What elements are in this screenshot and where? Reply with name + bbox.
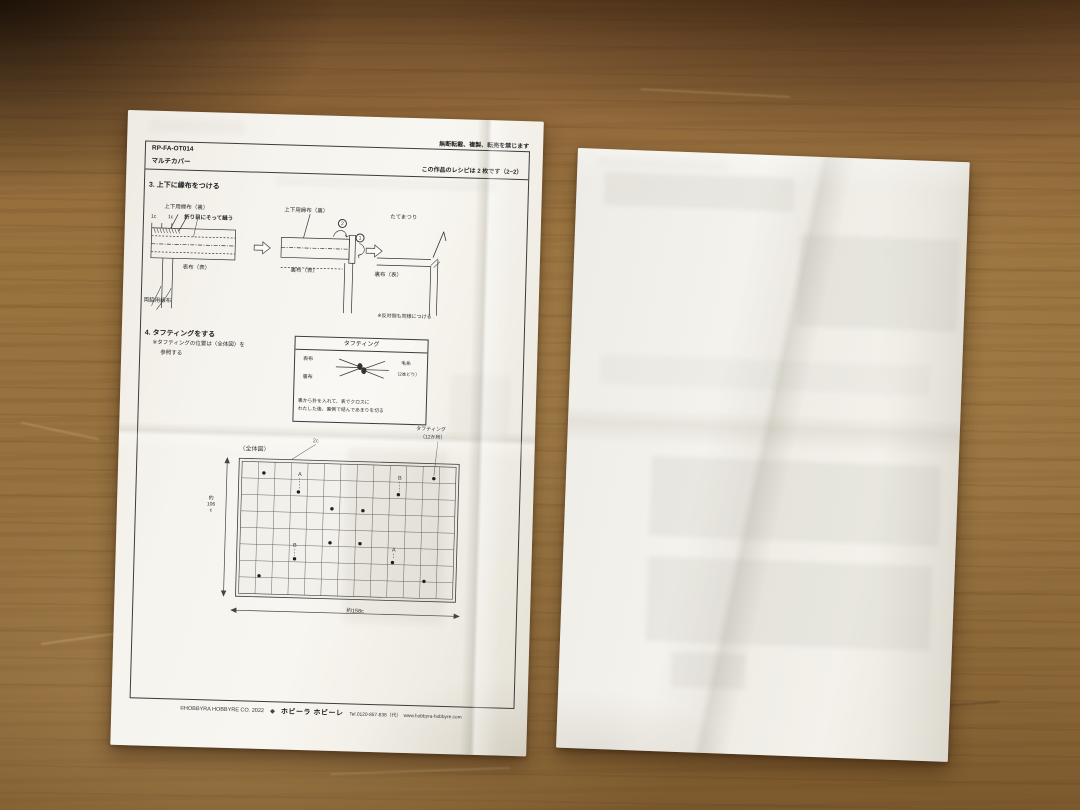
d3-note: ※反対側も同様につける: [377, 314, 431, 321]
hem-stitch-diagram-3: [375, 220, 478, 319]
tufting-back-label: 裏布: [303, 375, 313, 381]
tufting-detail-box: タフティング 表布 裏布 毛糸 （2本どり） 裏から針を入れて、表でクロスに わ…: [292, 336, 428, 426]
recipe-sheet-front: 無断転載、複製、転売を禁じます RP-FA-OT014 マルチカバー この作品の…: [110, 110, 544, 756]
tufting-front-label: 表布: [303, 357, 313, 363]
show-through-ghost: [645, 556, 933, 651]
d1-sew-note: 折り目にそって縫う: [184, 215, 233, 223]
flow-arrow-icon: [253, 241, 271, 255]
step4-note-line1: ※タフティングの位置は〈全体図〉を: [152, 340, 244, 349]
show-through-ghost: [149, 119, 244, 135]
footer-contact: Tel.0120-857-838（代） www.hobbyra-hobbyre.…: [349, 710, 461, 720]
d1-dim-1c: 1c: [151, 215, 156, 221]
tufting-mark-letter: A: [392, 548, 396, 554]
show-through-ghost: [599, 354, 930, 396]
tufting-yarn-label: 毛糸: [401, 362, 411, 368]
show-through-ghost: [797, 234, 960, 332]
brand-logo-icon: [270, 709, 275, 714]
tufting-box-title: タフティング: [295, 337, 427, 354]
item-code: RP-FA-OT014: [152, 145, 194, 153]
tufting-mark-letter: B: [293, 543, 297, 549]
step3-heading: 3. 上下に縁布をつける: [149, 180, 220, 192]
d1-side-strip-label: 両脇用縁布: [144, 298, 172, 305]
recipe-content-frame: RP-FA-OT014 マルチカバー この作品のレシピは 2 枚です（2−2） …: [130, 140, 530, 709]
wood-scratch: [21, 422, 100, 441]
show-through-ghost: [597, 157, 727, 171]
recipe-count-note: この作品のレシピは 2 枚です（2−2）: [421, 164, 522, 176]
footer-brand: ホビーラ ホビーレ: [281, 707, 344, 719]
wood-scratch: [330, 767, 510, 775]
tufting-count-label-line1: タフティング: [416, 427, 446, 434]
d3-fabric-label: 裏布（表）: [374, 272, 402, 279]
show-through-ghost: [670, 652, 746, 690]
wood-scratch: [640, 88, 790, 97]
overall-grid-diagram: ABBA: [220, 432, 475, 627]
step4-heading: 4. タフティングをする: [145, 328, 216, 340]
tufting-mark-letter: A: [298, 472, 302, 478]
tufting-yarn-note: （2本どり）: [395, 372, 420, 378]
step4-note-line2: 参照する: [160, 350, 182, 357]
recipe-sheet-back: [556, 148, 970, 762]
footer-copyright: ©HOBBYRA HOBBYRE CO. 2022: [180, 706, 264, 714]
d2-fabric-label: 裏布（表）: [290, 268, 318, 275]
tufting-caption-line2: わたした後、裏側で結んであまりを切る: [298, 405, 384, 414]
show-through-ghost: [604, 171, 795, 212]
wooden-table-surface: 無断転載、複製、転売を禁じます RP-FA-OT014 マルチカバー この作品の…: [0, 0, 1080, 810]
tufting-mark-letter: B: [398, 476, 402, 482]
d1-dim-1c: 1c: [168, 215, 173, 221]
height-dimension-label: 約 106 c: [202, 495, 220, 513]
d1-top-label: 上下用縁布（裏）: [164, 204, 208, 212]
item-title: マルチカバー: [151, 155, 190, 166]
d2-top-label: 上下用縁布（裏）: [284, 207, 328, 215]
tufting-knot-diagram: [326, 354, 397, 386]
show-through-ghost: [649, 456, 942, 547]
binding-diagram-2: [273, 221, 376, 316]
d1-fabric-label: 表布（表）: [183, 265, 211, 272]
